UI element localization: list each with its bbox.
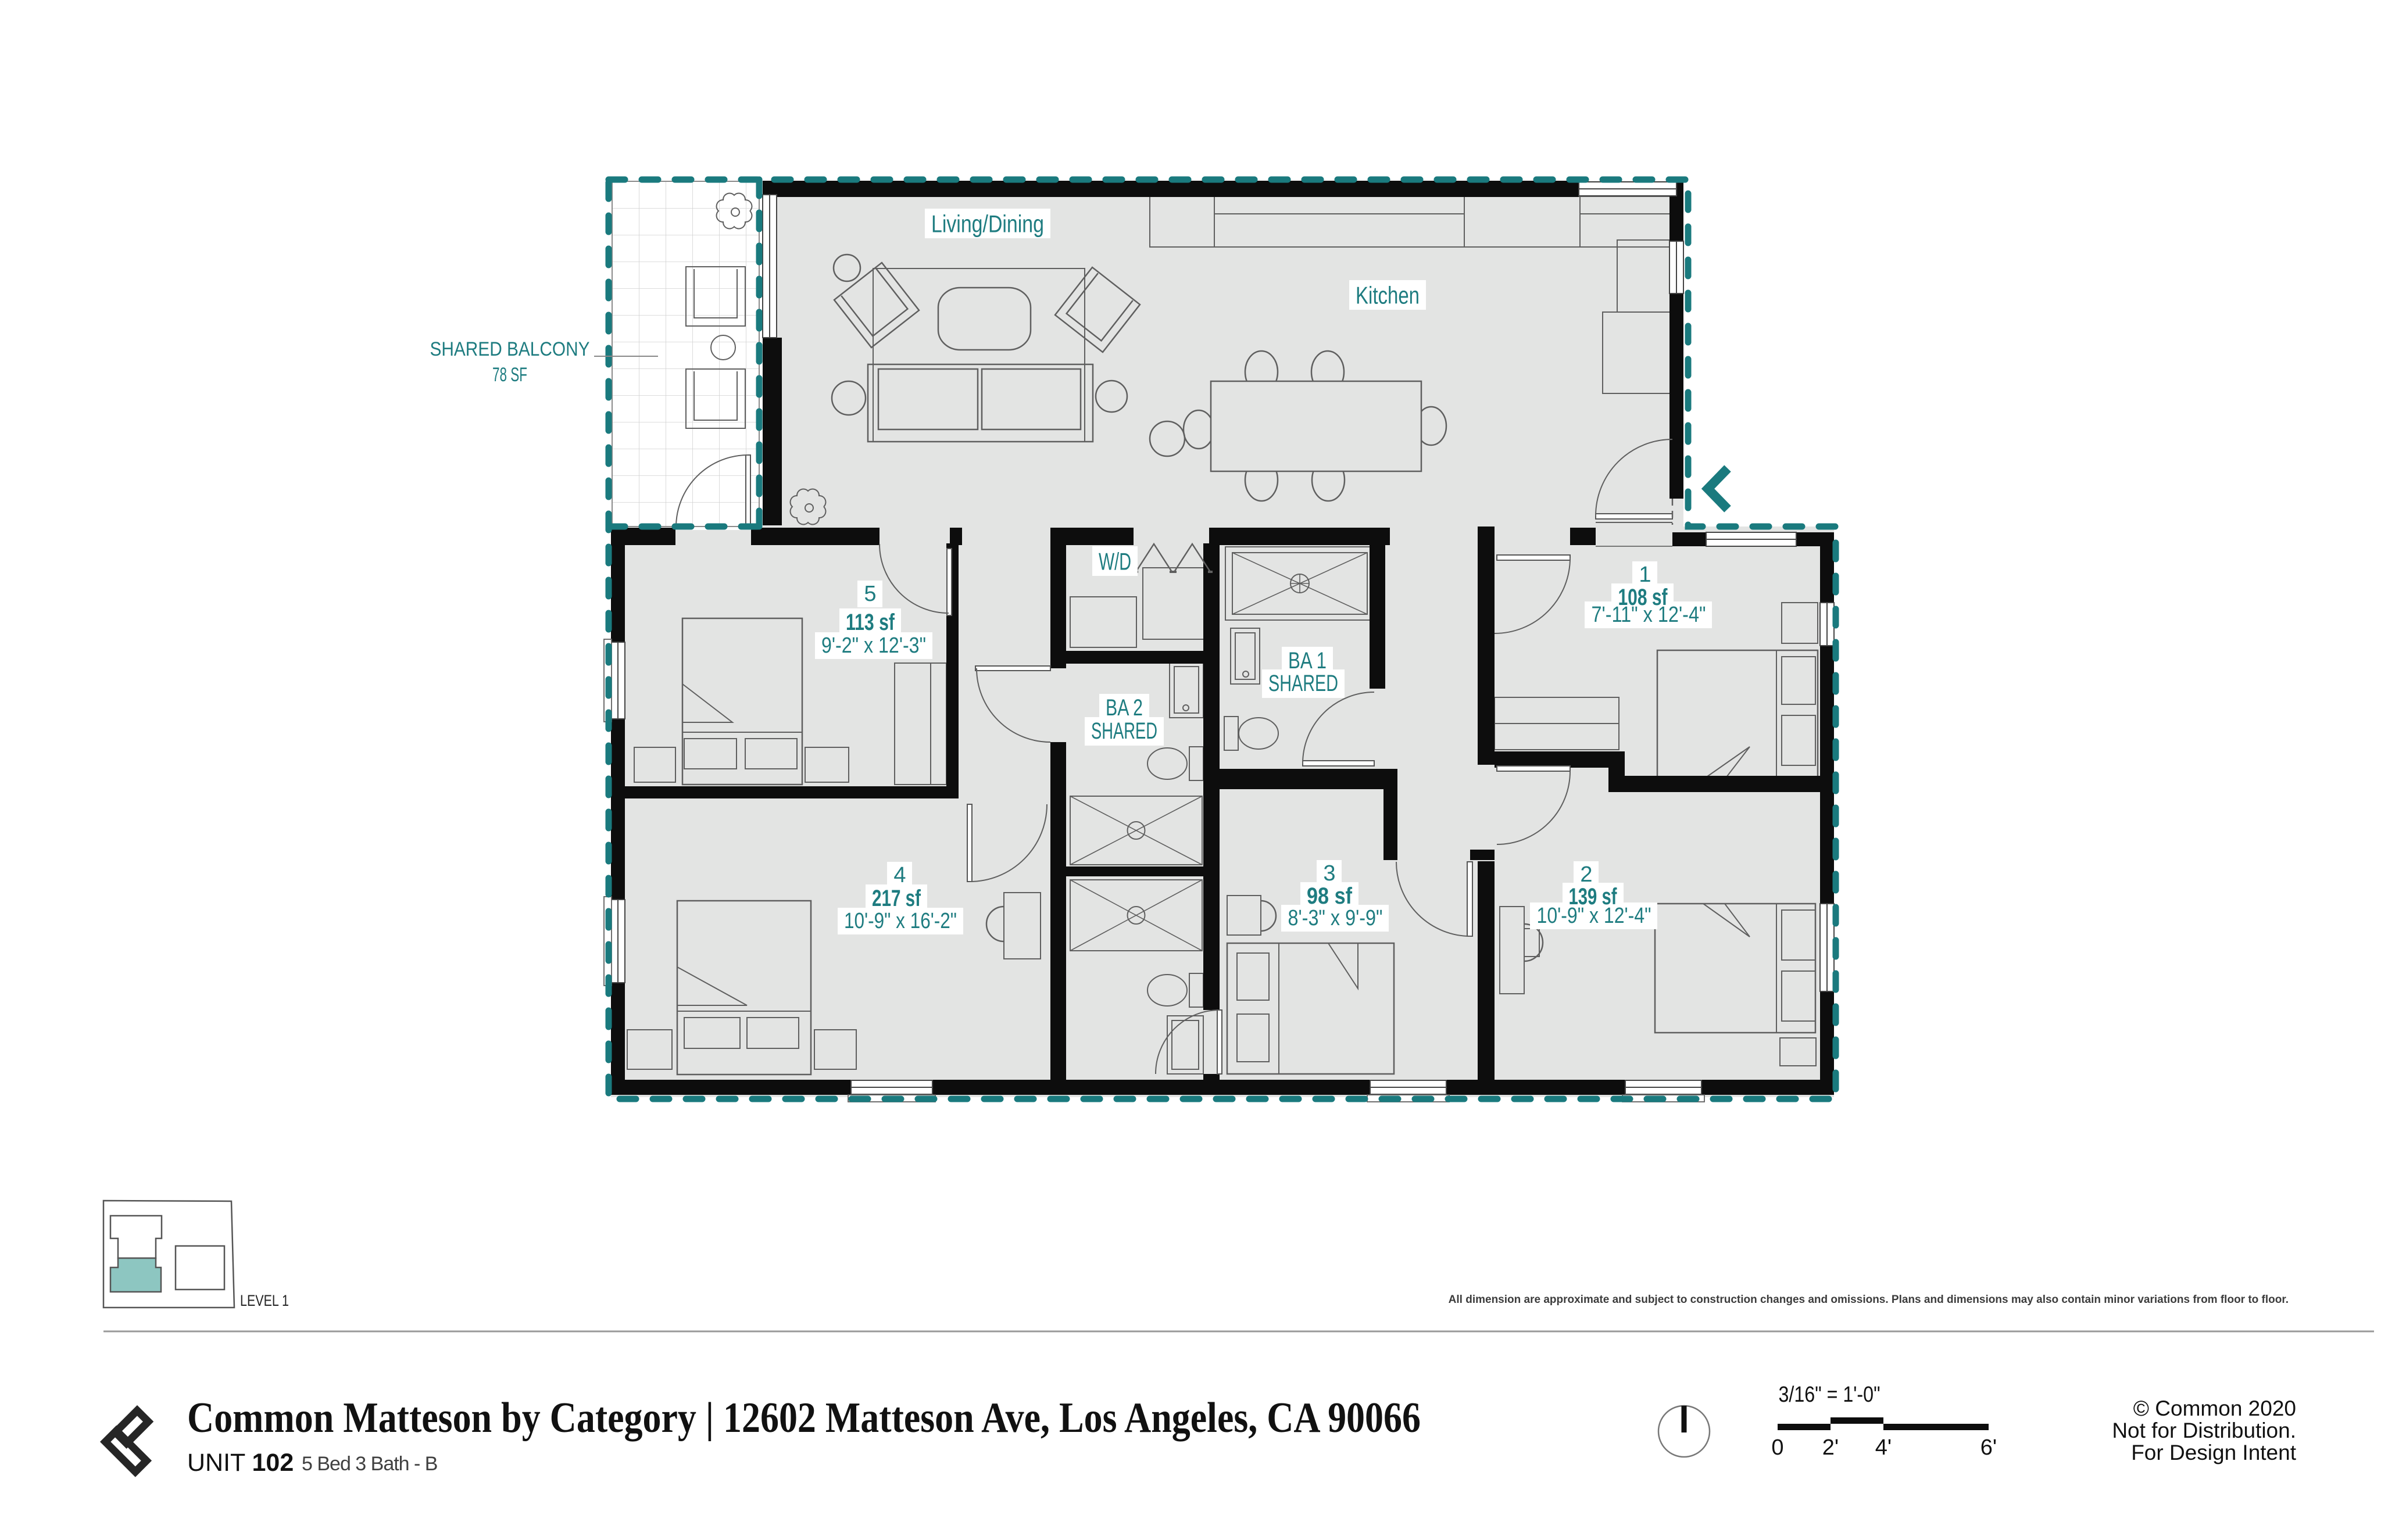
svg-text:Common Matteson by Category |: Common Matteson by Category | 12602 Matt… (187, 1394, 1421, 1442)
svg-text:2': 2' (1822, 1435, 1839, 1460)
svg-text:5 Bed 3 Bath - B: 5 Bed 3 Bath - B (302, 1453, 438, 1475)
svg-text:4': 4' (1875, 1435, 1892, 1460)
svg-text:BA 1: BA 1 (1288, 648, 1327, 674)
svg-text:4: 4 (893, 863, 906, 887)
svg-text:0: 0 (1771, 1435, 1783, 1460)
svg-text:9'-2" x 12'-3": 9'-2" x 12'-3" (821, 633, 926, 658)
svg-text:6': 6' (1980, 1435, 1997, 1460)
svg-text:98 sf: 98 sf (1307, 883, 1353, 909)
svg-text:78 SF: 78 SF (492, 364, 527, 386)
svg-text:SHARED: SHARED (1091, 718, 1157, 744)
svg-text:SHARED: SHARED (1268, 671, 1338, 696)
svg-text:3/16" = 1'-0": 3/16" = 1'-0" (1779, 1383, 1881, 1407)
svg-text:SHARED BALCONY: SHARED BALCONY (430, 338, 590, 360)
svg-text:UNIT 102: UNIT 102 (187, 1449, 294, 1477)
svg-text:5: 5 (864, 582, 876, 606)
svg-text:8'-3" x 9'-9": 8'-3" x 9'-9" (1288, 906, 1383, 930)
svg-text:10'-9" x 12'-4": 10'-9" x 12'-4" (1537, 904, 1651, 928)
svg-text:© Common 2020: © Common 2020 (2133, 1396, 2296, 1420)
svg-text:W/D: W/D (1099, 548, 1131, 575)
svg-text:113 sf: 113 sf (846, 610, 895, 635)
svg-text:2: 2 (1580, 862, 1592, 887)
svg-text:Not for Distribution.: Not for Distribution. (2112, 1419, 2296, 1442)
svg-text:217 sf: 217 sf (872, 886, 921, 911)
svg-text:1: 1 (1639, 563, 1651, 587)
svg-text:LEVEL 1: LEVEL 1 (240, 1292, 289, 1309)
svg-text:Living/Dining: Living/Dining (931, 210, 1044, 238)
svg-text:7'-11" x 12'-4": 7'-11" x 12'-4" (1592, 603, 1706, 627)
svg-text:BA 2: BA 2 (1106, 695, 1143, 721)
svg-text:3: 3 (1323, 861, 1335, 886)
svg-text:All dimension are approximate: All dimension are approximate and subjec… (1449, 1294, 2289, 1306)
svg-text:Kitchen: Kitchen (1356, 282, 1420, 309)
svg-text:For Design Intent: For Design Intent (2131, 1441, 2297, 1464)
svg-text:10'-9" x 16'-2": 10'-9" x 16'-2" (844, 909, 957, 933)
